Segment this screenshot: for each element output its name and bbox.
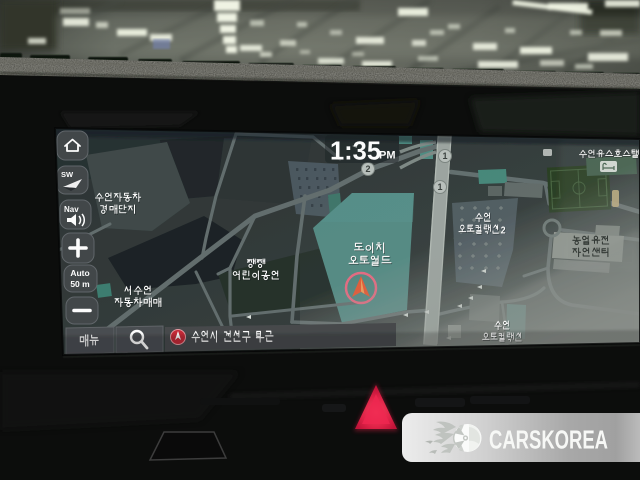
svg-text:CARSKOREA: CARSKOREA: [489, 425, 608, 455]
